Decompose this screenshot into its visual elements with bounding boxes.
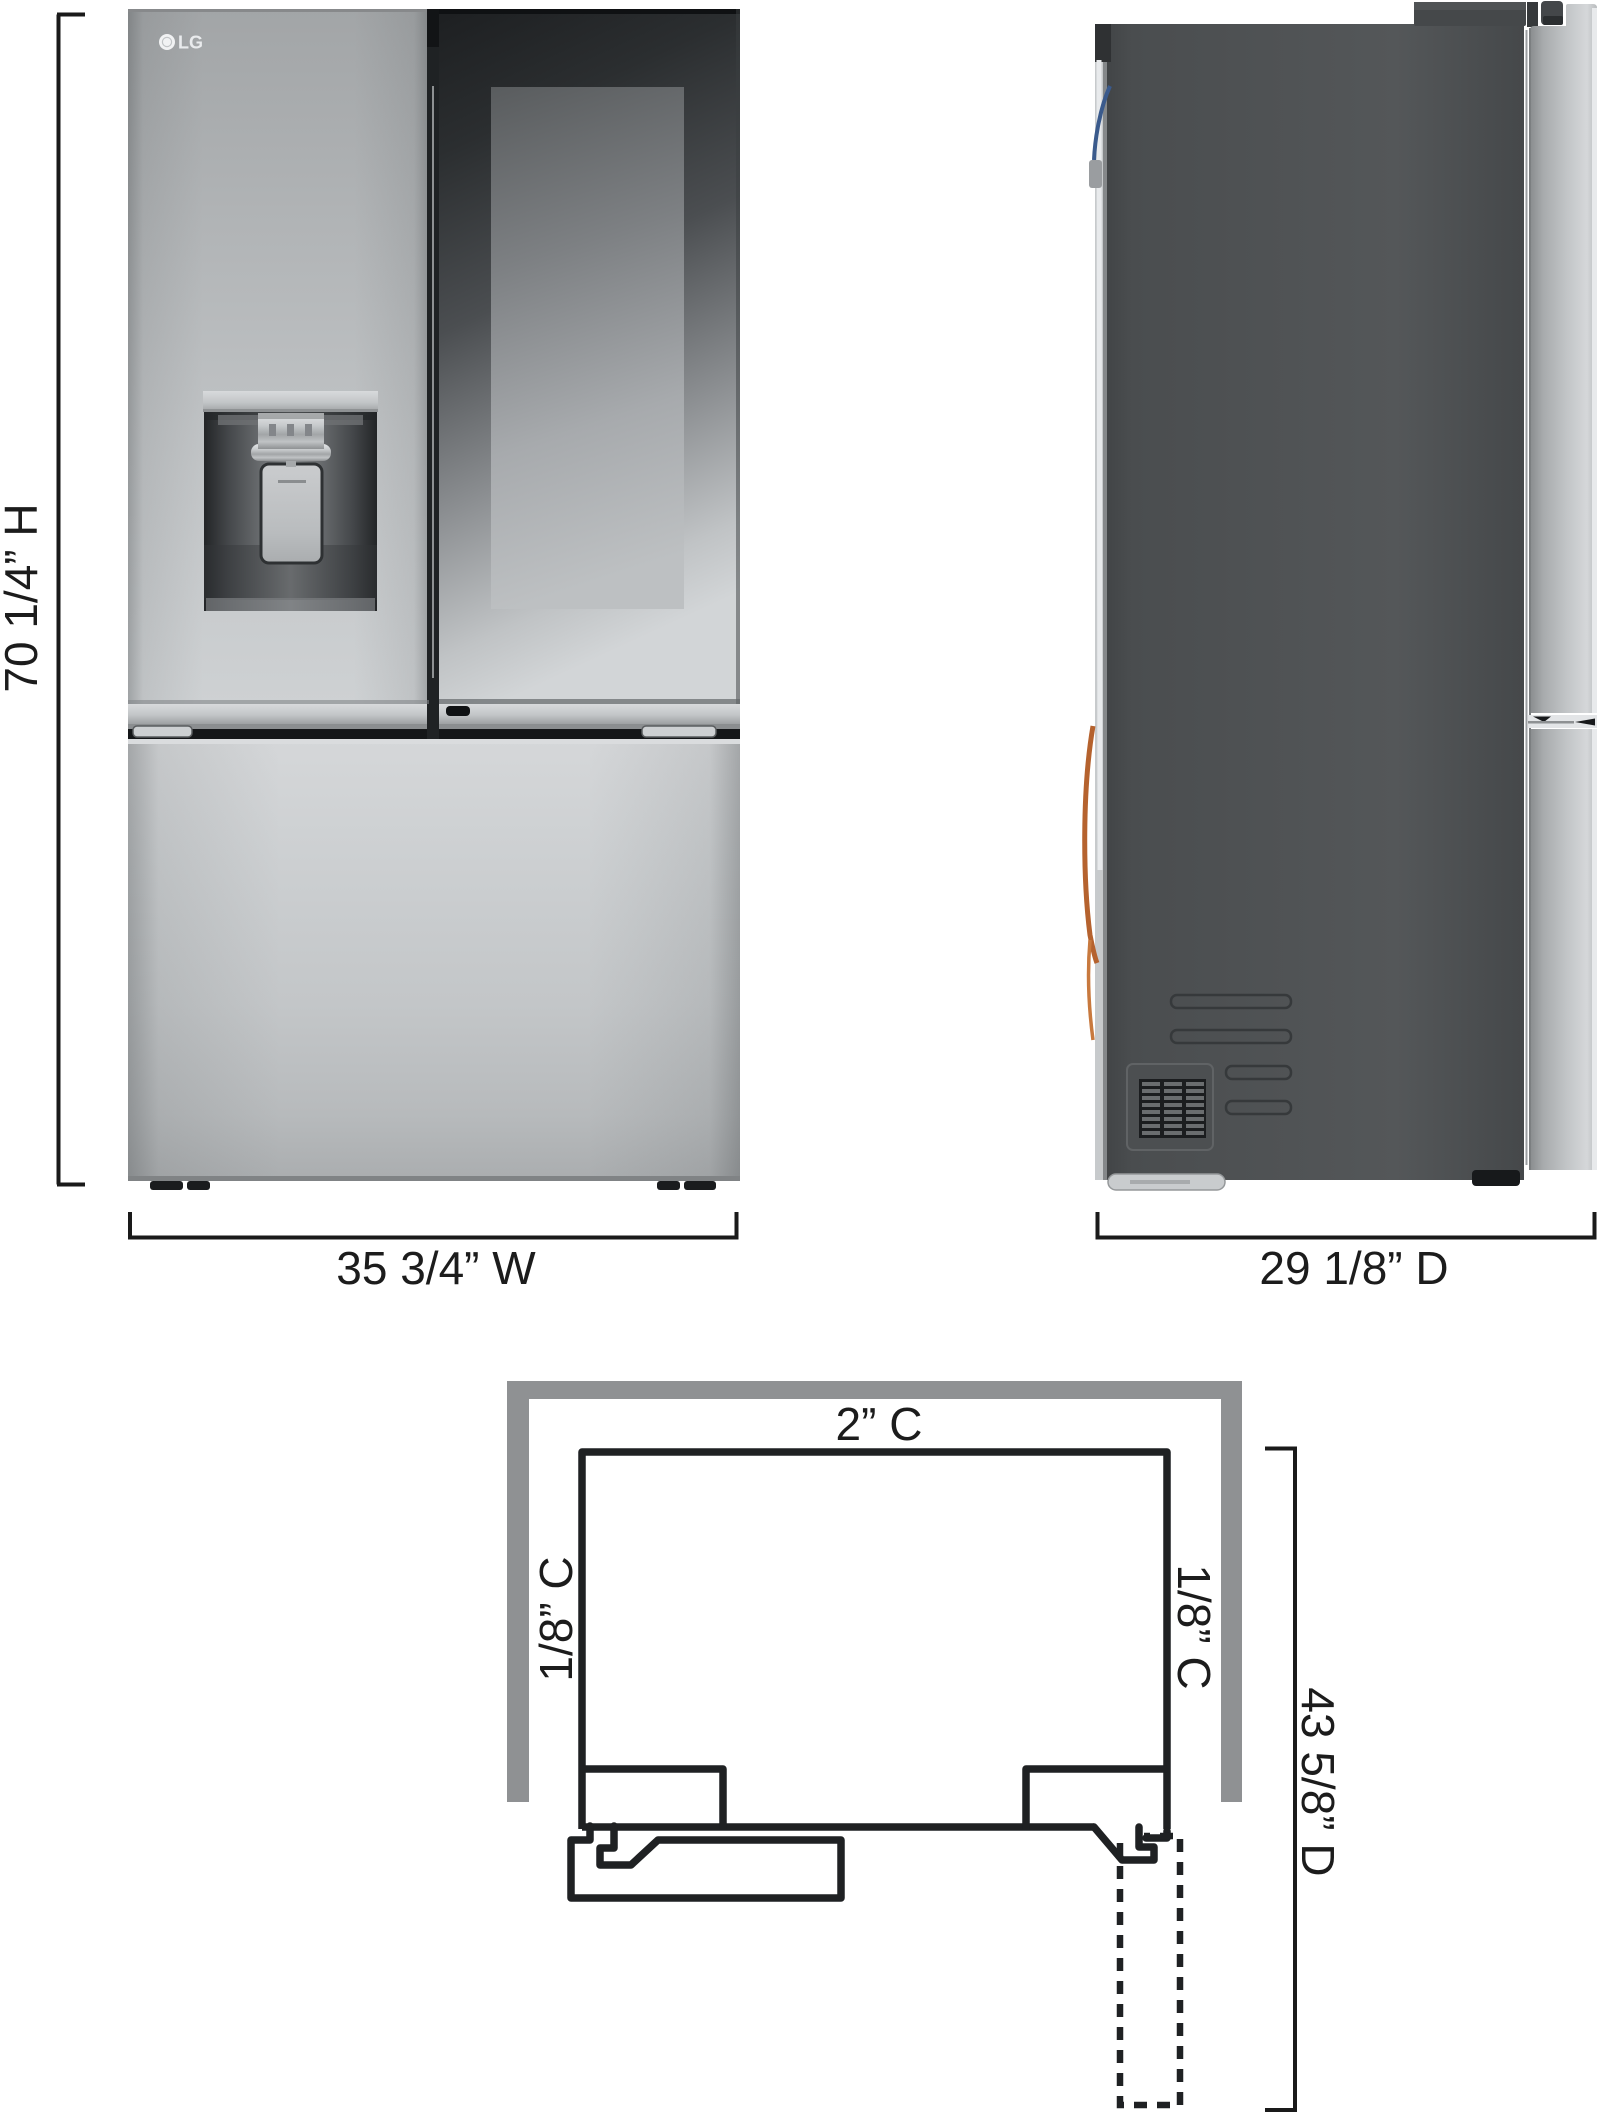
svg-text:70 1/4” H: 70 1/4” H xyxy=(0,503,47,692)
svg-text:35 3/4” W: 35 3/4” W xyxy=(336,1242,536,1294)
svg-text:1/8” C: 1/8” C xyxy=(530,1556,582,1681)
svg-text:29 1/8” D: 29 1/8” D xyxy=(1259,1242,1448,1294)
svg-text:LG: LG xyxy=(178,33,203,53)
svg-text:43 5/8” D: 43 5/8” D xyxy=(1292,1687,1344,1876)
svg-text:2” C: 2” C xyxy=(836,1398,923,1450)
svg-text:1/8” C: 1/8” C xyxy=(1168,1564,1220,1689)
